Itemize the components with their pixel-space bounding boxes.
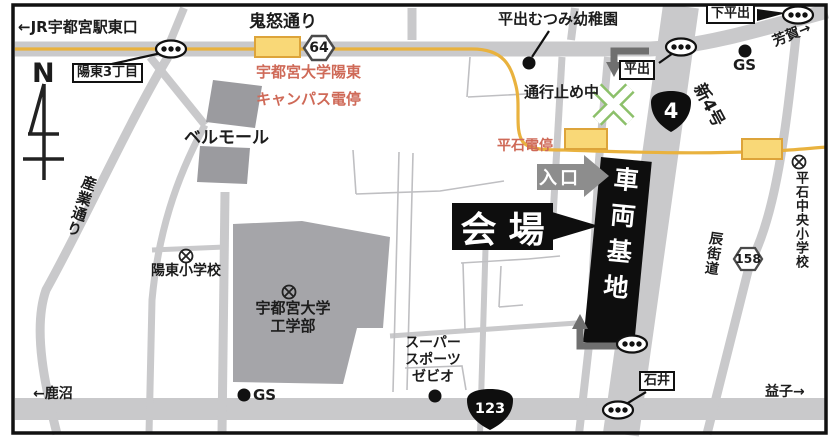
label-kinu-dori: 鬼怒通り	[249, 13, 317, 33]
label-kanuma: ←鹿沼	[33, 386, 73, 402]
school-icons-layer	[180, 156, 806, 299]
entrance-label: 入口	[536, 163, 584, 190]
school-icon	[180, 250, 193, 263]
traffic-light-icon	[156, 41, 186, 58]
label-university-2: 工学部	[246, 318, 340, 335]
gas-station-dot	[238, 389, 251, 402]
label-xebio-2: スポーツ	[398, 352, 468, 368]
route-64-number: 64	[305, 40, 333, 56]
signpost-shimo-hiraide: 下平出	[706, 4, 755, 24]
pointer-wedge	[757, 9, 786, 21]
school-icon	[283, 286, 296, 299]
label-hiraishi-chuo-elementary: 平石中央小学校	[792, 171, 807, 269]
venue-access-map: 会場 車両基地	[0, 0, 834, 442]
label-mashiko: 益子→	[765, 384, 805, 400]
traffic-lights-layer	[156, 7, 813, 419]
label-xebio-1: スーパー	[398, 335, 468, 351]
traffic-light-icon	[617, 336, 647, 353]
traffic-light-icon	[603, 402, 633, 419]
route-4-number: 4	[651, 99, 691, 123]
pointer-line	[532, 31, 549, 57]
kindergarten-dot	[523, 57, 536, 70]
school-icon	[793, 156, 806, 169]
label-campus-tram-stop-2: キャンパス電停	[256, 91, 361, 108]
label-jr-station-exit: ←JR宇都宮駅東口	[18, 19, 138, 36]
signpost-hiraide: 平出	[619, 60, 655, 80]
label-campus-tram-stop-1: 宇都宮大学陽東	[256, 64, 361, 81]
traffic-light-icon	[666, 39, 696, 56]
label-university-1: 宇都宮大学	[246, 300, 340, 317]
traffic-light-icon	[783, 7, 813, 24]
label-yoto-elementary: 陽東小学校	[149, 263, 223, 279]
label-hiraishi-tram-stop: 平石電停	[497, 138, 553, 154]
label-xebio-3: ゼビオ	[398, 369, 468, 385]
route-158-number: 158	[734, 252, 762, 266]
label-bell-mall: ベルモール	[184, 129, 269, 149]
label-hiraide-mutsumi-kindergarten: 平出むつみ幼稚園	[498, 11, 618, 28]
label-gs-south: GS	[253, 387, 276, 404]
signpost-yoto-3chome: 陽東3丁目	[72, 63, 143, 83]
route-arrow-south	[572, 314, 618, 346]
label-road-closed: 通行止め中	[524, 84, 599, 101]
label-gs-north: GS	[733, 57, 756, 74]
xebio-dot	[429, 390, 442, 403]
route-123-number: 123	[470, 401, 510, 418]
compass-north-label: N	[32, 58, 55, 89]
signpost-ishii: 石井	[639, 371, 675, 391]
